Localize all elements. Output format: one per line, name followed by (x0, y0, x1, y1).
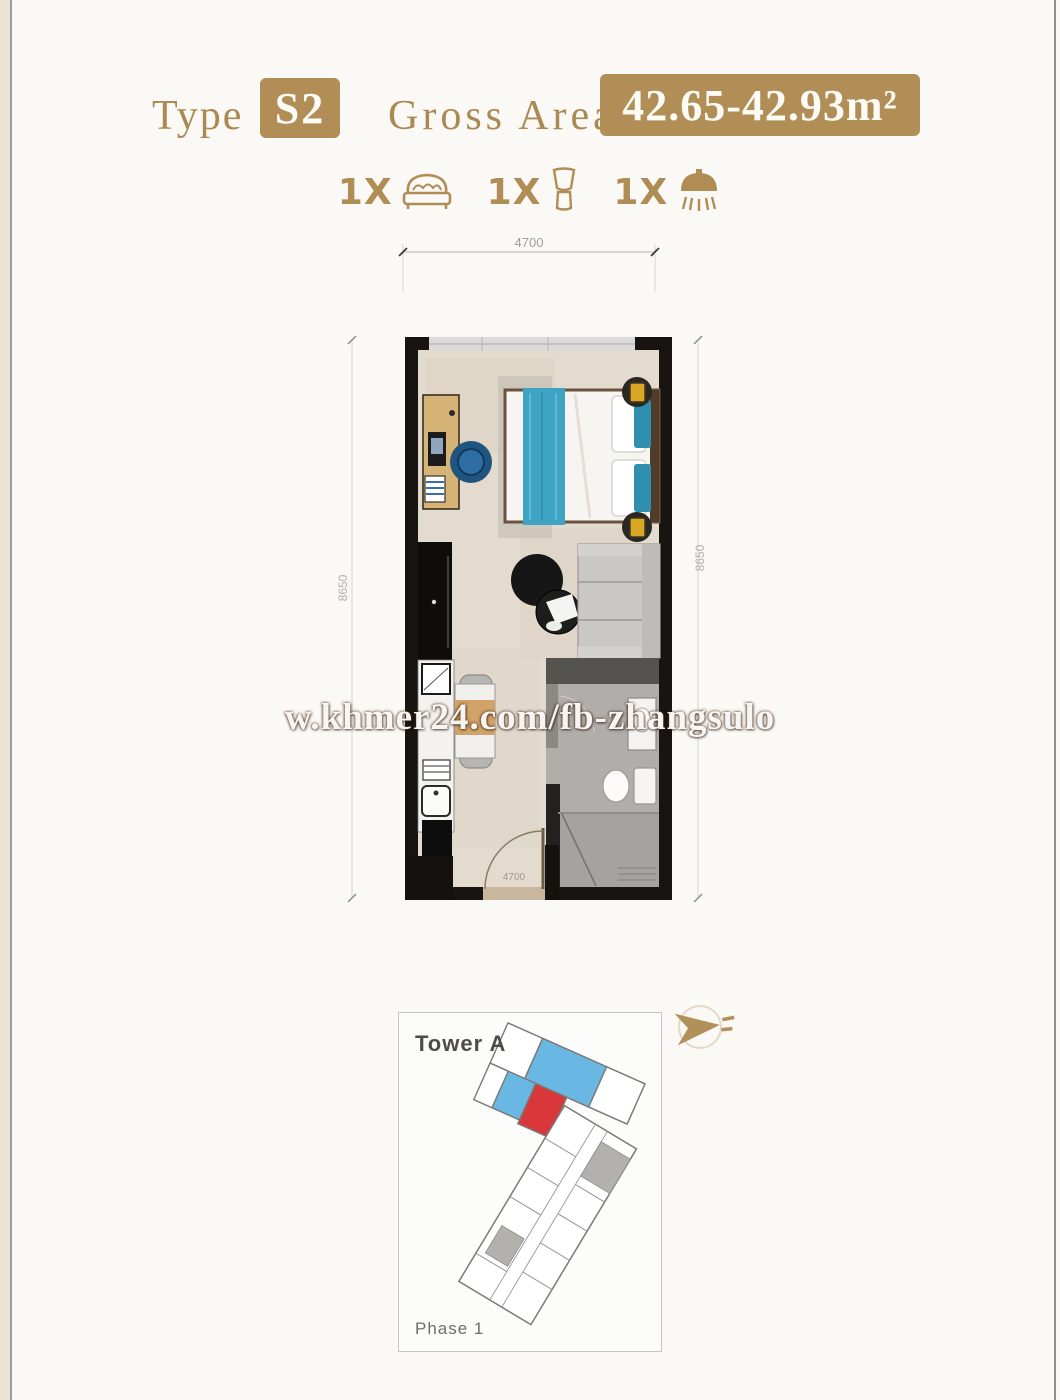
dimension-left: 8650 (336, 336, 356, 902)
gross-area-label: Gross Area (388, 92, 616, 140)
type-label: Type (152, 92, 243, 140)
wall-notch (405, 856, 453, 900)
window-band (429, 337, 635, 351)
desk-chair (450, 441, 492, 483)
dimension-left-label: 8650 (336, 574, 350, 601)
door-dimension-label: 4700 (503, 872, 526, 883)
floor-plan: 4700 8650 8650 (330, 228, 720, 910)
dimension-right-label: 8650 (693, 544, 707, 571)
feature-shower: 1X (613, 167, 722, 218)
tower-footprint (399, 1013, 663, 1353)
bed-count: 1X (338, 172, 393, 213)
dimension-top-label: 4700 (515, 235, 544, 250)
north-arrow-icon (666, 996, 742, 1060)
feature-toilet: 1X (487, 166, 580, 219)
tower-location-map: Tower A Phase 1 (398, 1012, 662, 1352)
shower-icon (676, 167, 722, 218)
gross-area-badge: 42.65-42.93m² (600, 74, 920, 136)
phase-label: Phase 1 (415, 1319, 484, 1339)
nightstand-top (622, 377, 652, 407)
toilet-count: 1X (487, 172, 542, 213)
tv-cabinet (418, 542, 452, 660)
dimension-right: 8650 (693, 336, 707, 902)
toilet-icon (549, 166, 579, 219)
kitchen-counter (418, 660, 454, 858)
feature-icons-row: 1X 1X 1X (0, 162, 1060, 222)
tower-label: Tower A (415, 1031, 506, 1057)
bed (505, 388, 659, 525)
bed-icon (401, 168, 453, 217)
bathroom (546, 658, 659, 887)
tower-main-wing (459, 1106, 637, 1325)
header: Type S2 Gross Area 42.65-42.93m² (0, 70, 1060, 150)
dining-set (455, 675, 495, 768)
sofa (578, 544, 660, 658)
shower-count: 1X (613, 172, 668, 213)
type-badge: S2 (260, 78, 340, 138)
flyer-page: { "page": { "background": "#fbf9f5", "ed… (0, 0, 1060, 1400)
feature-bed: 1X (338, 168, 453, 217)
dimension-top: 4700 (399, 235, 659, 292)
nightstand-bottom (622, 512, 652, 542)
